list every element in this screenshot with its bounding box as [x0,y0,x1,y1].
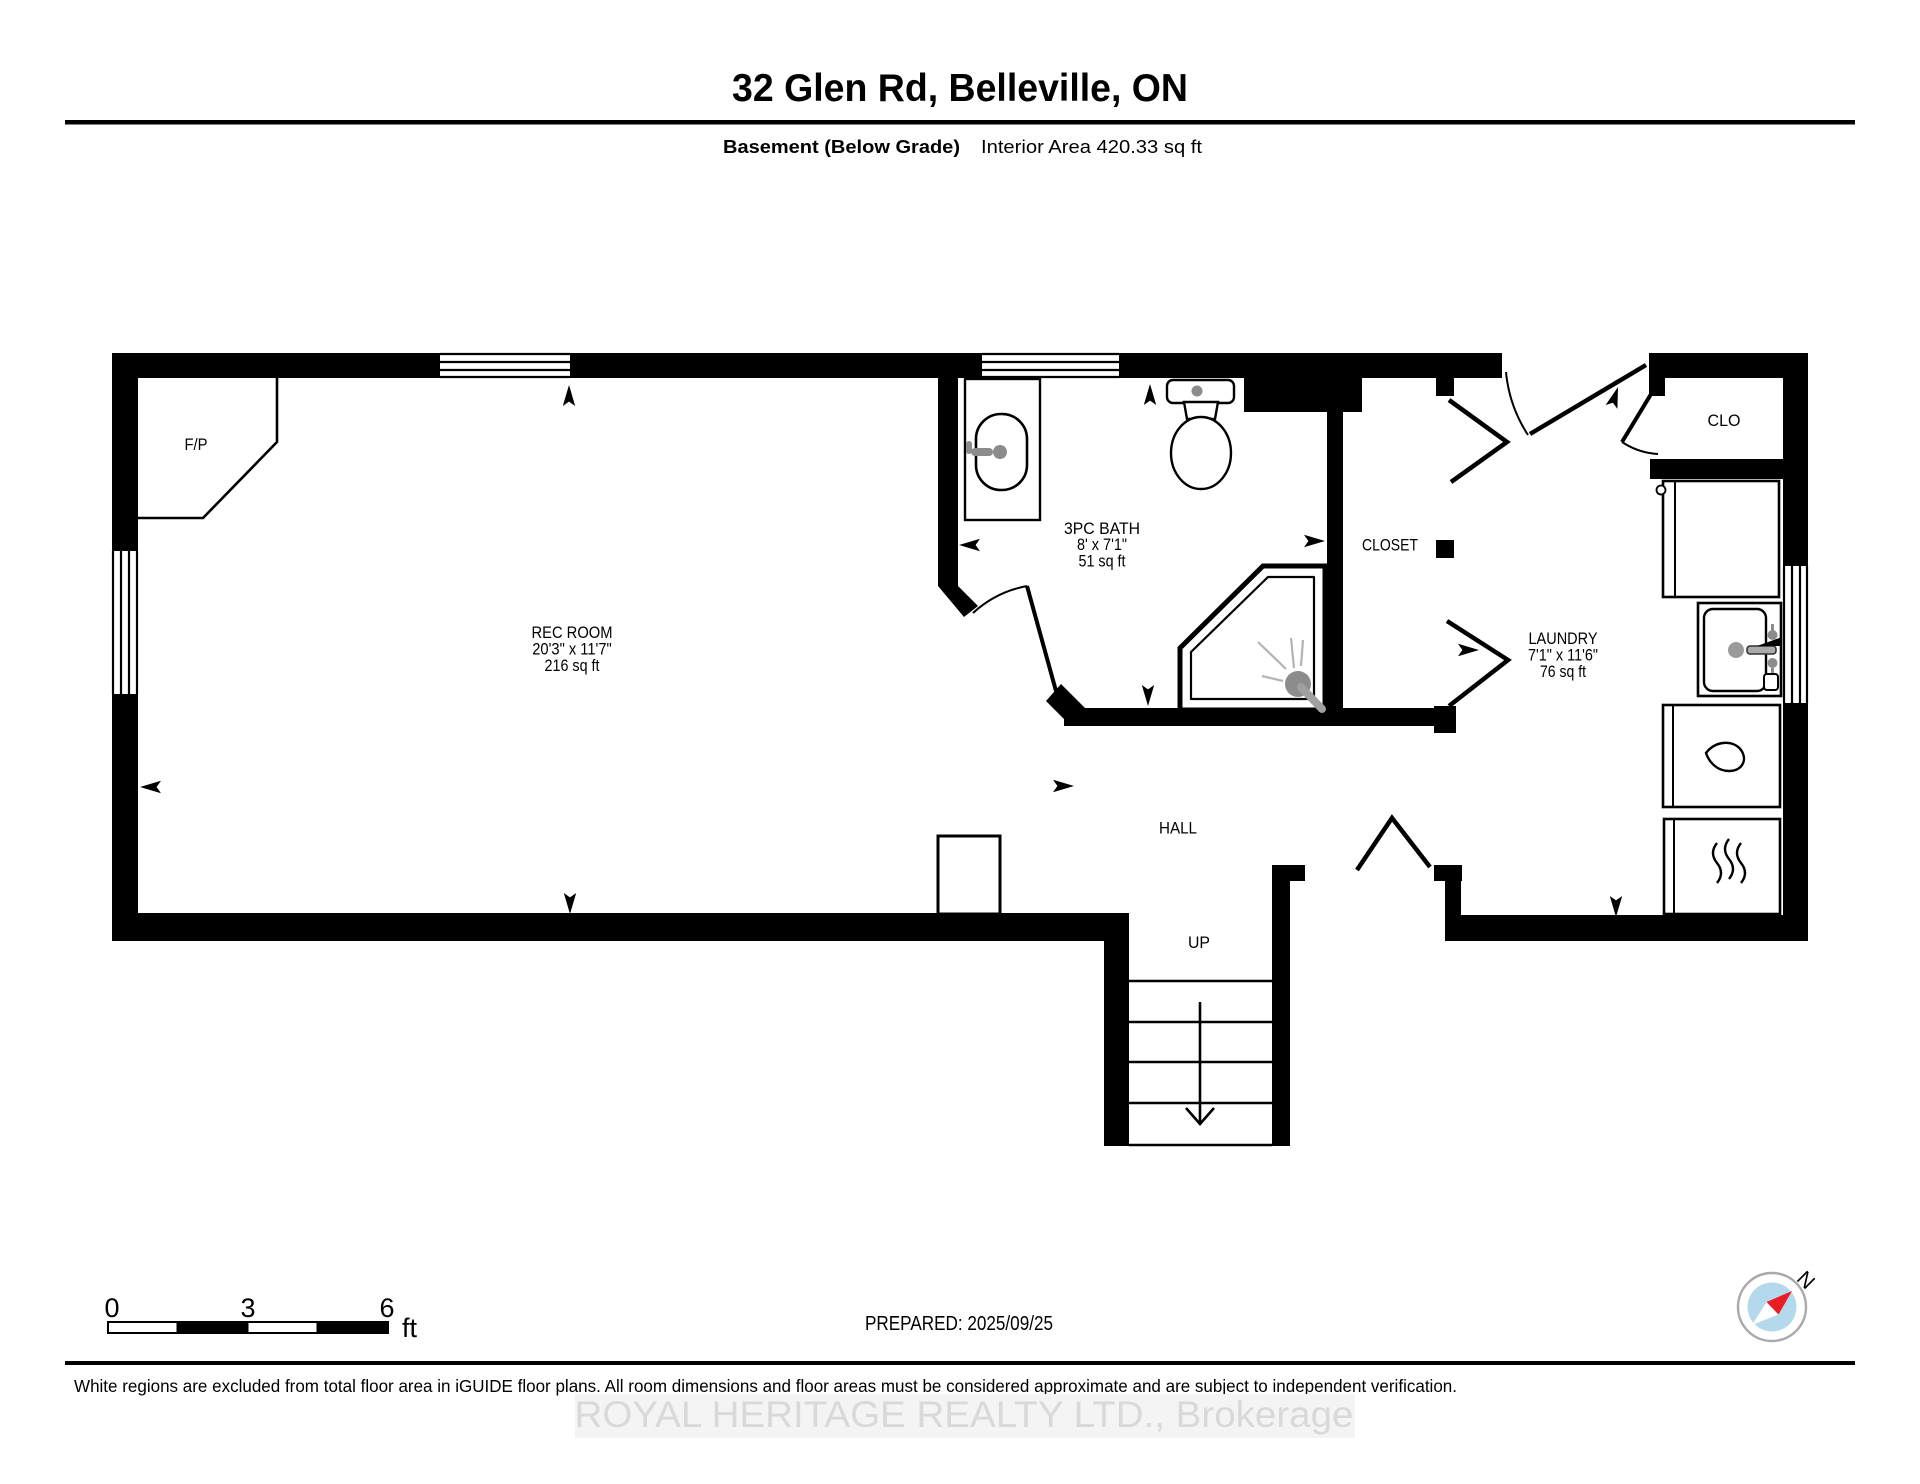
svg-text:PREPARED: 2025/09/25: PREPARED: 2025/09/25 [865,1313,1053,1335]
svg-text:76 sq ft: 76 sq ft [1540,663,1586,681]
svg-text:0: 0 [104,1293,119,1323]
svg-text:ROYAL HERITAGE REALTY LTD., Br: ROYAL HERITAGE REALTY LTD., Brokerage [575,1394,1354,1435]
svg-text:3: 3 [240,1293,255,1323]
svg-text:CLOSET: CLOSET [1362,537,1418,555]
svg-text:Basement (Below Grade): Basement (Below Grade) [723,136,960,157]
svg-text:HALL: HALL [1159,820,1197,838]
svg-text:REC ROOM: REC ROOM [532,624,613,642]
svg-text:8' x 7'1": 8' x 7'1" [1077,536,1127,554]
svg-text:LAUNDRY: LAUNDRY [1529,630,1598,648]
svg-text:ft: ft [402,1313,418,1343]
svg-text:32 Glen Rd, Belleville, ON: 32 Glen Rd, Belleville, ON [732,67,1188,110]
svg-text:CLO: CLO [1708,412,1741,430]
svg-text:20'3" x 11'7": 20'3" x 11'7" [532,641,612,659]
svg-text:51 sq ft: 51 sq ft [1079,553,1126,571]
svg-text:7'1" x 11'6": 7'1" x 11'6" [1528,647,1598,665]
svg-text:Interior Area 420.33 sq ft: Interior Area 420.33 sq ft [981,136,1202,157]
svg-text:216 sq ft: 216 sq ft [545,657,600,675]
svg-text:6: 6 [379,1293,394,1323]
svg-text:UP: UP [1188,934,1210,952]
svg-text:F/P: F/P [185,436,208,454]
